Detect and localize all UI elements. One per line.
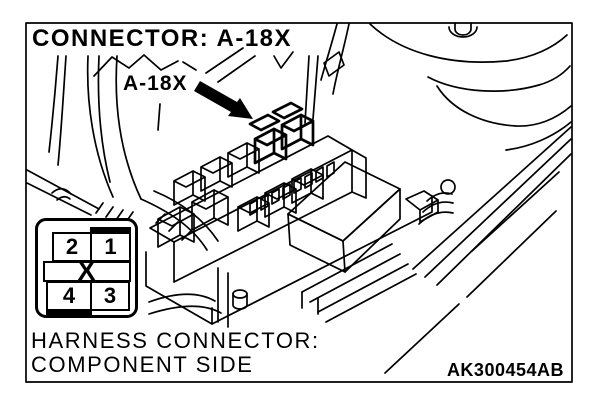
strut-stud-icon [455,23,471,35]
pin1-orientation-bar [90,227,131,233]
figure-title: CONNECTOR: A-18X [32,25,292,53]
figure-code: AK300454AB [445,360,566,381]
caption-line-2: COMPONENT SIDE [31,352,257,378]
pin-cell-3: 3 [90,281,130,311]
connector-location-figure: CONNECTOR: A-18X A-18X HARNESS CONNECTOR… [0,0,608,416]
pin-diagram-center-mark: X [38,258,135,284]
relay-box-art [146,103,438,327]
strut-tower-art [370,23,571,150]
pin-diagram: 2 1 4 3 X [35,218,138,318]
pin4-orientation-bar [46,309,92,315]
caption-line-1: HARNESS CONNECTOR: [31,328,324,354]
cowl-diagonal-art [385,127,571,373]
connector-callout-label: A-18X [121,72,190,96]
callout-arrow-icon [194,81,253,119]
